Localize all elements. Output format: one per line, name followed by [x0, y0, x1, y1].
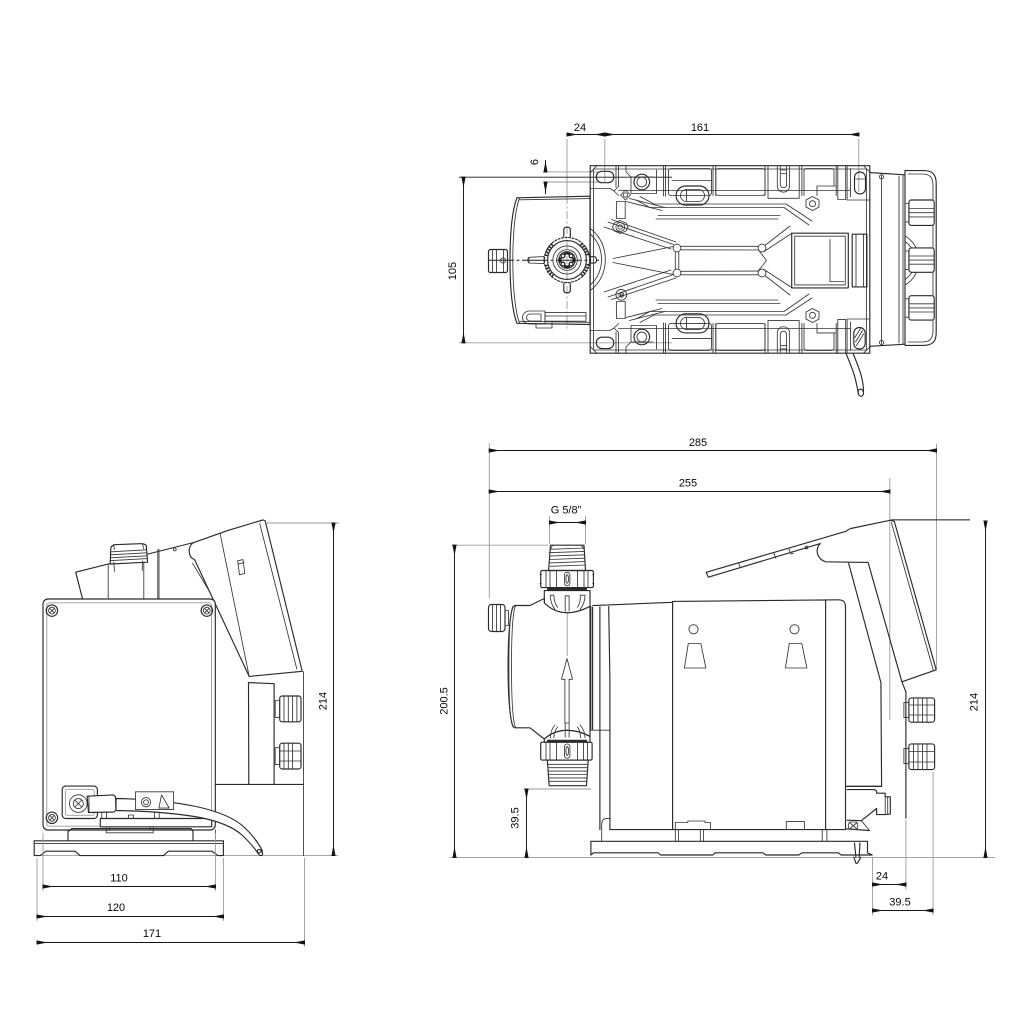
svg-text:161: 161 — [691, 122, 709, 134]
svg-text:214: 214 — [969, 693, 981, 711]
svg-text:110: 110 — [110, 873, 128, 885]
svg-text:255: 255 — [679, 478, 697, 490]
svg-text:171: 171 — [143, 928, 161, 940]
svg-text:39.5: 39.5 — [510, 807, 522, 828]
svg-text:120: 120 — [107, 902, 125, 914]
svg-text:214: 214 — [318, 692, 330, 710]
svg-text:G 5/8”: G 5/8” — [551, 505, 582, 517]
svg-text:39.5: 39.5 — [889, 897, 910, 909]
svg-text:200.5: 200.5 — [439, 687, 451, 715]
svg-text:24: 24 — [876, 871, 888, 883]
svg-text:105: 105 — [447, 262, 459, 280]
svg-text:6: 6 — [529, 159, 541, 165]
svg-text:24: 24 — [574, 122, 586, 134]
svg-text:285: 285 — [689, 437, 707, 449]
